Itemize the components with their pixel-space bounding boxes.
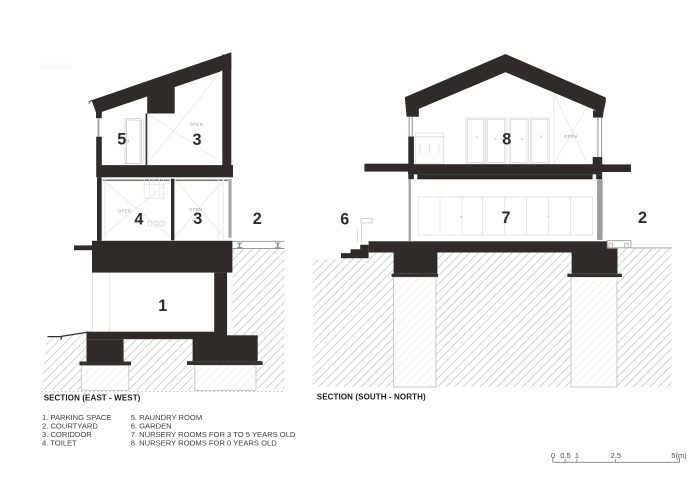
svg-text:3: 3	[192, 131, 201, 149]
svg-text:5(m): 5(m)	[671, 451, 687, 460]
svg-text:7: 7	[501, 209, 510, 227]
svg-text:OPEN: OPEN	[564, 134, 577, 139]
svg-text:8. NURSERY ROOMS FOR 0 YEARS O: 8. NURSERY ROOMS FOR 0 YEARS OLD	[131, 438, 278, 447]
svg-text:2: 2	[253, 210, 262, 228]
svg-text:4: 4	[134, 211, 143, 229]
svg-text:4. TOILET: 4. TOILET	[42, 438, 77, 447]
svg-text:6: 6	[340, 210, 349, 228]
svg-text:2.5: 2.5	[611, 451, 621, 460]
svg-text:5: 5	[117, 131, 126, 149]
svg-text:1: 1	[158, 297, 167, 315]
svg-text:3: 3	[193, 210, 202, 228]
svg-text:2: 2	[638, 209, 647, 227]
svg-text:0.5: 0.5	[560, 451, 570, 460]
svg-text:OPEN: OPEN	[118, 209, 131, 214]
svg-text:0: 0	[551, 451, 555, 460]
svg-text:8: 8	[502, 130, 511, 148]
svg-text:OPEN: OPEN	[190, 122, 203, 127]
svg-text:SECTION (SOUTH - NORTH): SECTION (SOUTH - NORTH)	[317, 392, 426, 401]
svg-text:SECTION (EAST - WEST): SECTION (EAST - WEST)	[44, 393, 141, 402]
svg-text:1: 1	[575, 451, 579, 460]
